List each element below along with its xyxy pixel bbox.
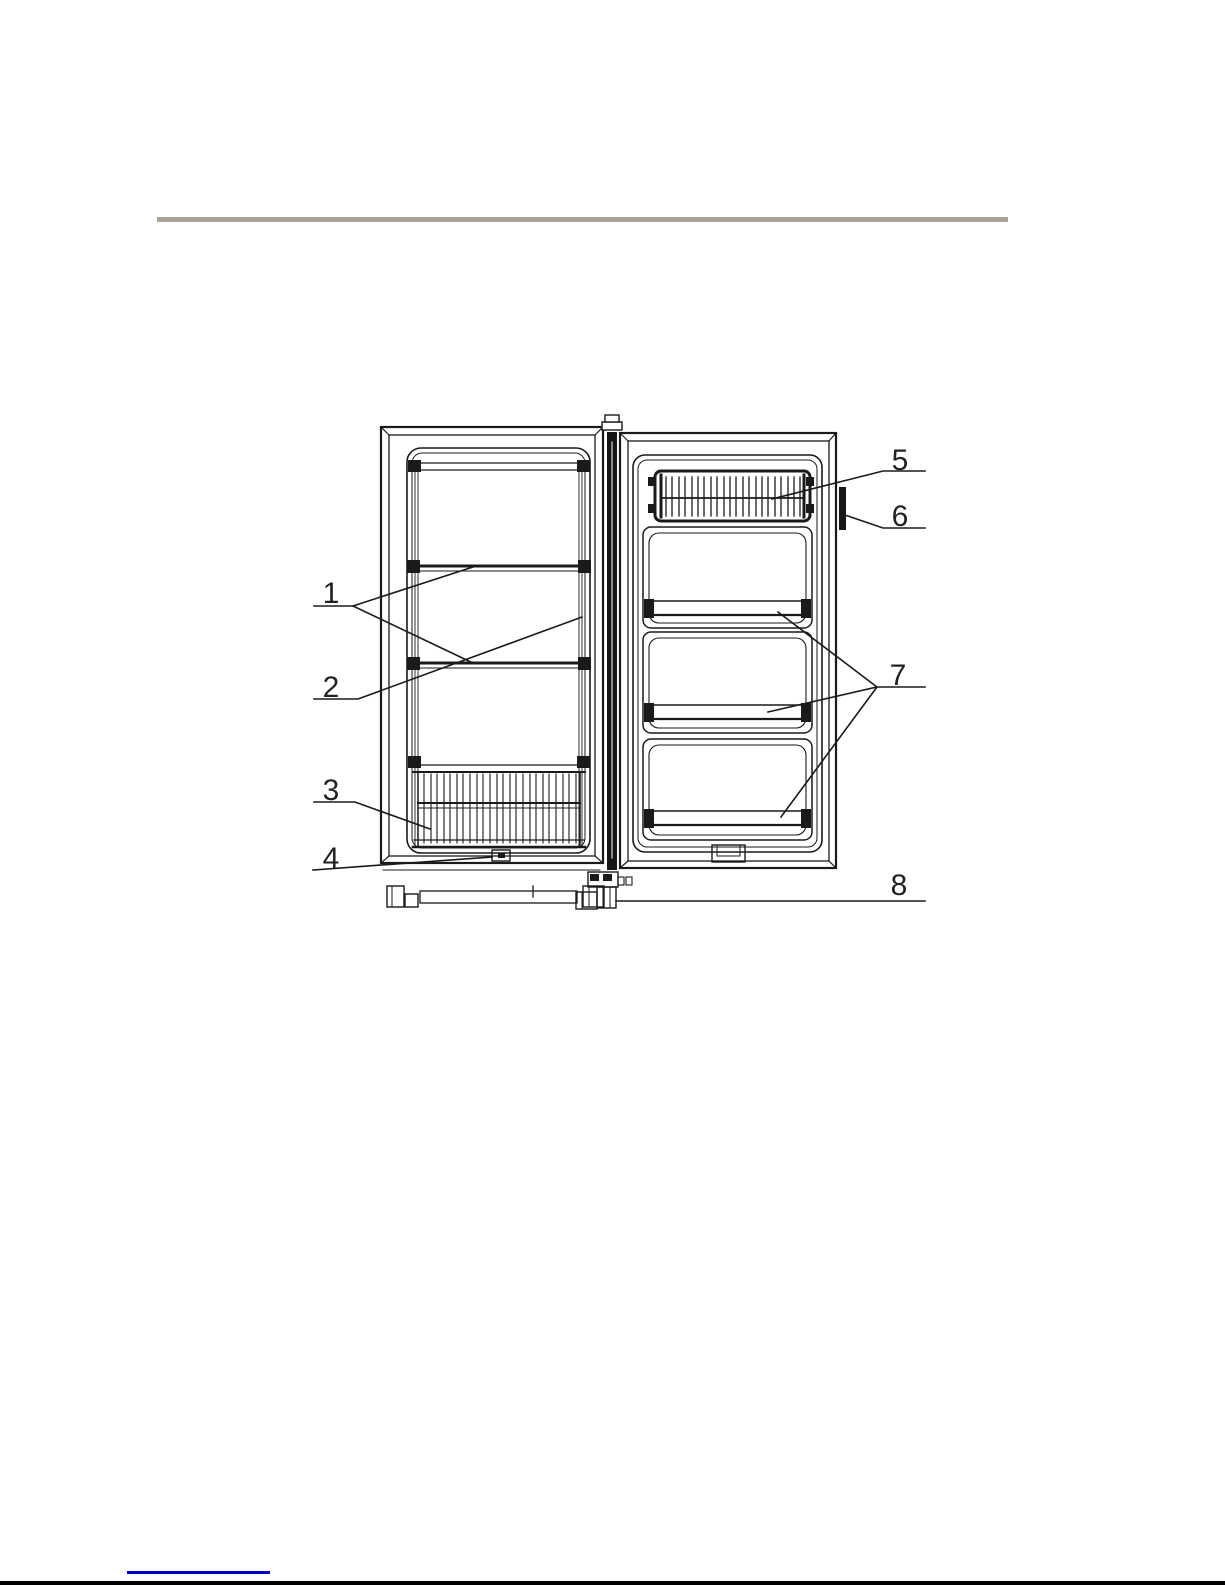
- cabinet-frame-bevel: [389, 435, 595, 856]
- callout-label-2: 2: [323, 671, 340, 704]
- kick-plate: [420, 891, 577, 903]
- shelf-1-bracket-left: [407, 560, 420, 573]
- freezer-cabinet: [381, 427, 604, 907]
- basket-bracket-left: [408, 756, 421, 768]
- door-bin-2: [643, 632, 812, 733]
- cabinet-liner-inner: [412, 453, 585, 848]
- cabinet-outer-frame: [381, 427, 603, 863]
- callout-label-1: 1: [323, 577, 340, 610]
- leader-6: [845, 515, 925, 528]
- cabinet-corner-bevels: [381, 427, 603, 863]
- foot-right: [583, 886, 604, 907]
- footer-link-underline[interactable]: [127, 1571, 270, 1574]
- foot-left: [387, 886, 404, 907]
- leader-7: [768, 612, 925, 817]
- callout-label-7: 7: [890, 659, 907, 692]
- door-bin-3: [643, 739, 812, 840]
- door-wire-rack: [648, 471, 814, 521]
- door-liner-inner: [638, 460, 817, 847]
- cabinet-base: [383, 870, 604, 907]
- cabinet-wire-basket: [408, 756, 590, 847]
- top-hinge-cap: [605, 415, 619, 422]
- top-rail-bracket-right: [577, 460, 590, 472]
- cabinet-shelf-rails: [415, 470, 582, 846]
- door-bin-1: [643, 527, 812, 628]
- basket-bracket-right: [577, 756, 590, 768]
- callout-label-6: 6: [892, 500, 909, 533]
- callout-label-3: 3: [323, 774, 340, 807]
- callout-label-8: 8: [891, 869, 908, 902]
- document-page: 1 2 3 4 5 6 7 8: [0, 0, 1225, 1585]
- door-handle-recess: [839, 487, 846, 530]
- top-rail-bracket-left: [408, 460, 421, 472]
- freezer-diagram: 1 2 3 4 5 6 7 8: [0, 0, 1225, 1585]
- shelf-1-bracket-right: [578, 560, 591, 573]
- leader-2: [314, 617, 582, 699]
- callout-label-5: 5: [892, 444, 909, 477]
- callout-label-4: 4: [323, 842, 340, 875]
- footer-rule: [0, 1581, 1225, 1585]
- door-frame-bevel: [628, 441, 829, 861]
- top-hinge: [602, 422, 622, 430]
- shelf-2-bracket-right: [578, 657, 591, 670]
- latch-striker-detail: [498, 853, 505, 858]
- cabinet-top-rail: [412, 463, 585, 470]
- shelf-2-bracket-left: [407, 657, 420, 670]
- foot-left-2: [405, 894, 418, 907]
